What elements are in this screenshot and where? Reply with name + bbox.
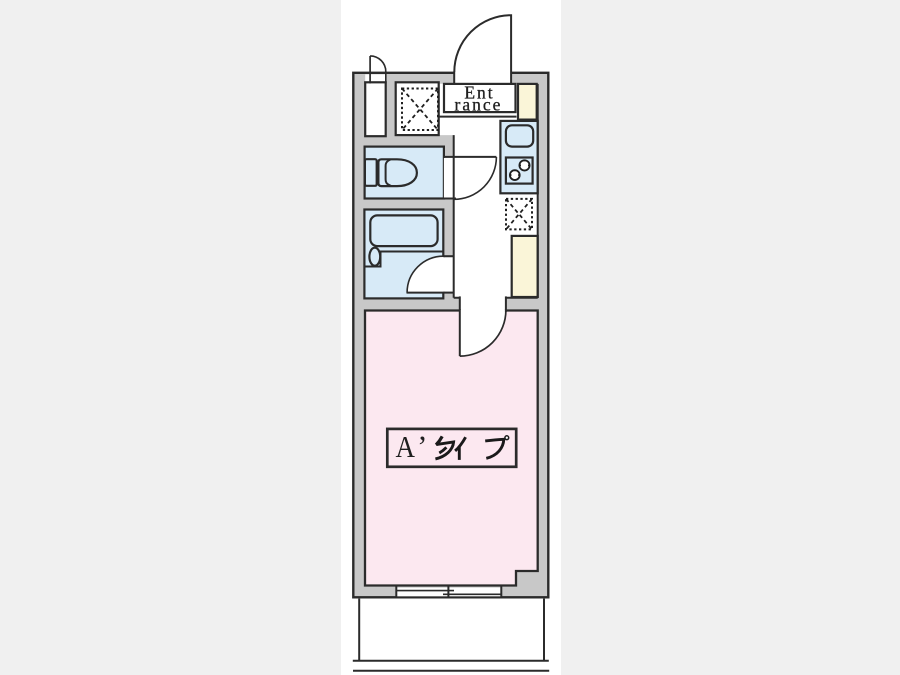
svg-text:’: ’ — [417, 429, 427, 464]
svg-text:A: A — [396, 430, 415, 464]
svg-text:rance: rance — [455, 94, 503, 114]
